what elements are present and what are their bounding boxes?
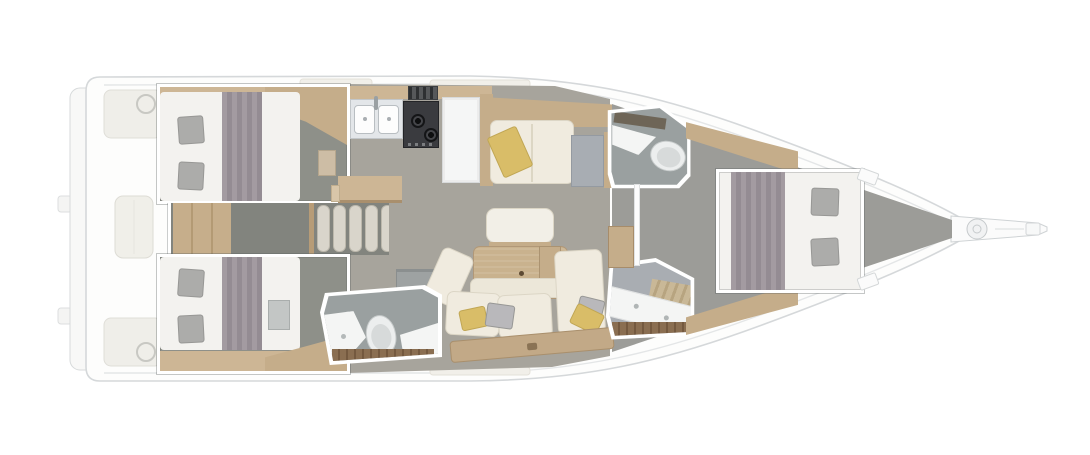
nav-table bbox=[571, 135, 604, 187]
refrigerator bbox=[442, 97, 480, 183]
stair-tread bbox=[349, 205, 362, 252]
aft-bed-starboard bbox=[160, 92, 300, 201]
passage-wardrobe bbox=[608, 226, 634, 268]
shower-teak-grate bbox=[612, 322, 692, 338]
bed-pillow bbox=[811, 188, 840, 217]
galley-oven-vent bbox=[408, 86, 438, 100]
port-head-floor bbox=[324, 289, 438, 361]
bed-pillow bbox=[810, 237, 839, 266]
toilet-seat bbox=[654, 144, 683, 170]
head-sink bbox=[612, 125, 656, 155]
stove-knobs bbox=[408, 143, 436, 146]
stair-tread bbox=[365, 205, 378, 252]
rail-latch bbox=[527, 343, 538, 351]
bed-pillow bbox=[177, 115, 205, 145]
salon-sofa bbox=[430, 246, 612, 364]
sink-faucet bbox=[374, 96, 378, 110]
stair-tread bbox=[381, 205, 389, 252]
forward-bed-blanket bbox=[731, 172, 785, 290]
companionway-stairs bbox=[317, 205, 389, 252]
stair-stringer-left bbox=[309, 203, 314, 255]
galley-island-step bbox=[331, 185, 340, 202]
sink-basin bbox=[378, 105, 399, 134]
stove-burner bbox=[411, 114, 425, 128]
forward-shower-floor bbox=[608, 262, 694, 338]
sink-drain bbox=[363, 117, 367, 121]
salon-bench bbox=[486, 208, 554, 243]
corridor-wardrobe bbox=[173, 203, 231, 255]
companionway-corridor bbox=[168, 203, 389, 255]
bed-pillow bbox=[177, 161, 204, 190]
head-counter bbox=[613, 111, 666, 129]
bed-runner bbox=[222, 92, 262, 201]
yacht-floorplan bbox=[0, 0, 1090, 455]
counter-faucet bbox=[633, 303, 639, 309]
bed-pillow bbox=[177, 314, 204, 343]
bowsprit-tip bbox=[1026, 223, 1040, 235]
counter-faucet bbox=[663, 315, 669, 321]
stove-burner bbox=[424, 128, 438, 142]
settee-seam bbox=[531, 124, 533, 182]
passage-door-frame bbox=[634, 184, 640, 266]
stair-tread bbox=[333, 205, 346, 252]
sink-drain bbox=[387, 117, 391, 121]
anchor-windlass bbox=[967, 219, 987, 239]
toilet bbox=[647, 137, 690, 176]
port-head bbox=[320, 285, 442, 365]
bed-pillow bbox=[177, 268, 205, 298]
galley-sink-unit bbox=[350, 99, 403, 139]
sink-drain bbox=[341, 334, 346, 339]
stair-tread bbox=[317, 205, 330, 252]
toilet-seat bbox=[369, 322, 393, 351]
galley-stove bbox=[403, 101, 439, 148]
sofa-pillow-gray bbox=[484, 302, 515, 330]
sink-basin bbox=[354, 105, 375, 134]
cabin-vanity bbox=[268, 300, 290, 330]
bed-runner bbox=[222, 257, 262, 350]
starboard-aft-cabin bbox=[157, 84, 350, 204]
cabin-shelf-box bbox=[318, 150, 336, 176]
forward-cabin-bed-box bbox=[716, 169, 864, 293]
galley-island bbox=[338, 176, 402, 203]
